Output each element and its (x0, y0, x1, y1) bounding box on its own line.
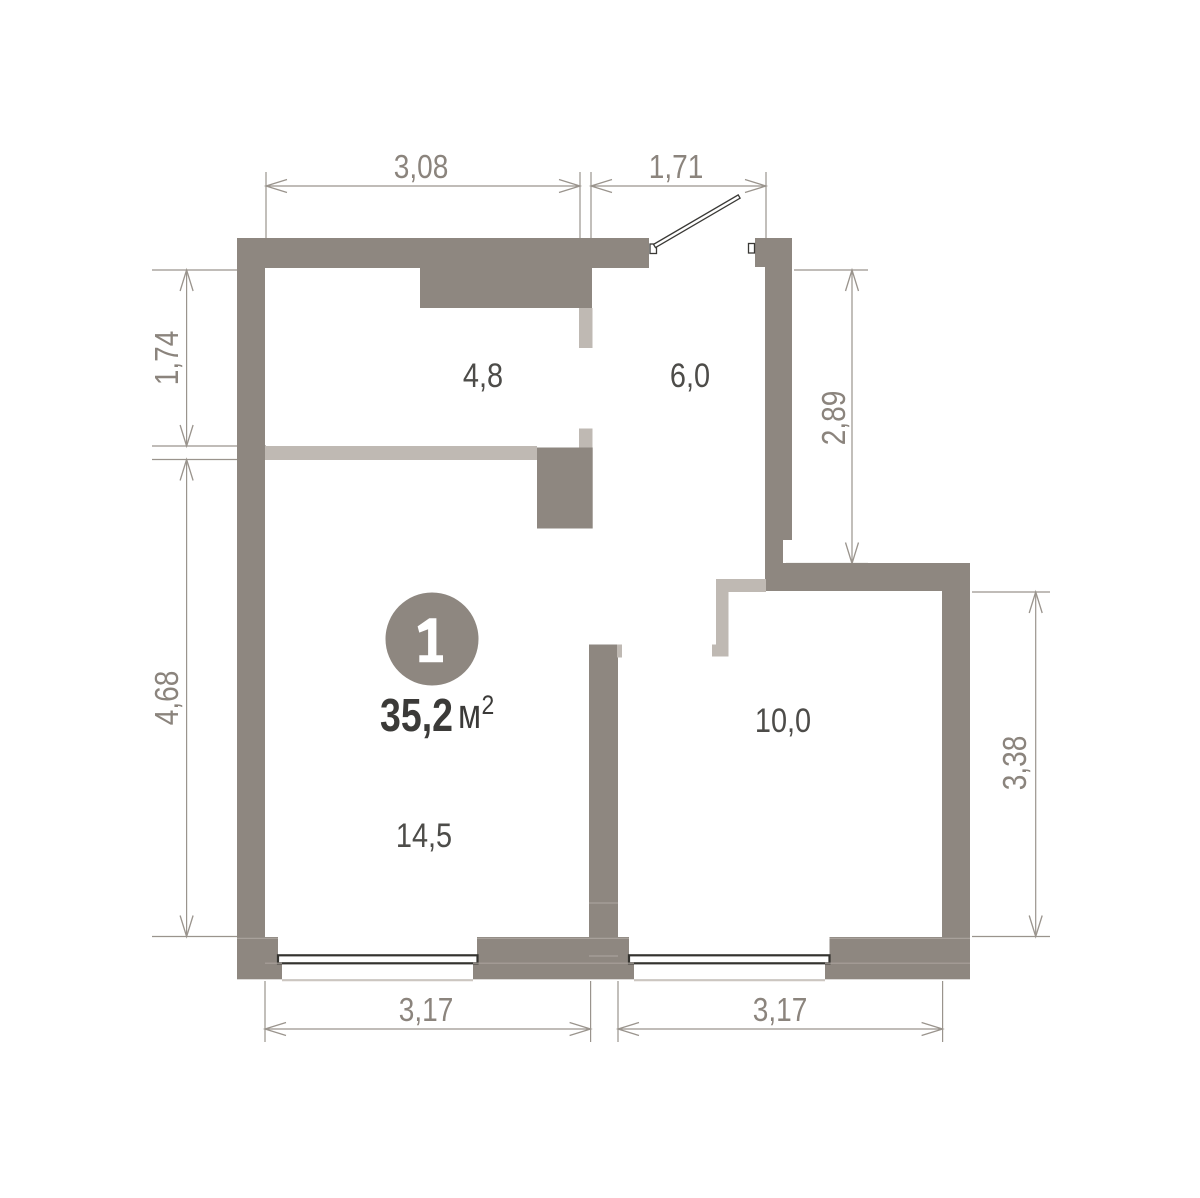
svg-text:1,74: 1,74 (149, 331, 186, 386)
svg-text:4,8: 4,8 (463, 356, 503, 395)
svg-text:35,2: 35,2 (380, 689, 453, 741)
svg-text:3,38: 3,38 (997, 736, 1034, 791)
svg-text:3,17: 3,17 (399, 992, 454, 1029)
svg-text:2,89: 2,89 (816, 391, 853, 446)
svg-text:10,0: 10,0 (755, 701, 811, 740)
svg-text:2: 2 (482, 690, 495, 720)
svg-text:3,08: 3,08 (394, 149, 449, 186)
svg-text:4,68: 4,68 (149, 671, 186, 726)
svg-text:м: м (458, 692, 481, 738)
svg-text:1,71: 1,71 (649, 149, 704, 186)
svg-text:3,17: 3,17 (753, 992, 808, 1029)
svg-text:14,5: 14,5 (396, 816, 452, 855)
svg-text:6,0: 6,0 (670, 356, 710, 395)
